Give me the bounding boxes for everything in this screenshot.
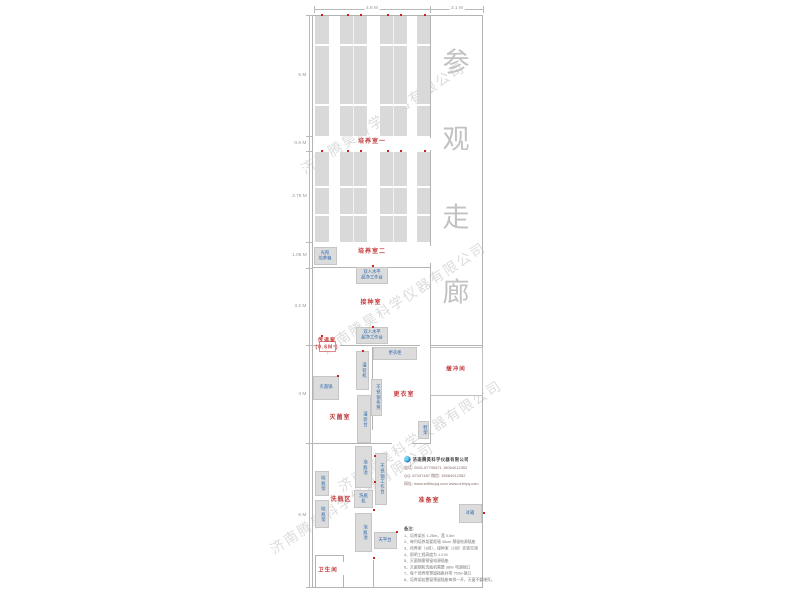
- company-logo-icon: [404, 456, 410, 462]
- wall-segment: [373, 560, 374, 587]
- notes-block: 备注: 1、培养架长 1.25m，宽 0.5m2、每列培养架要距墙 30cm 预…: [404, 525, 488, 584]
- rack-shelf-gap: [417, 214, 431, 216]
- balance-table: 天平台: [374, 532, 397, 549]
- shoe-rack-label: 鞋架: [421, 425, 426, 435]
- power-dot: [360, 150, 362, 152]
- power-dot: [372, 265, 374, 267]
- power-dot: [374, 455, 376, 457]
- pass-window-label: 传递窗 (0.6M²): [315, 338, 338, 351]
- dimension-tick: [306, 443, 313, 444]
- company-contact-line: 网址: www.sdthkxyq.com www.cnthyq.com: [404, 480, 489, 486]
- wall-segment: [315, 555, 343, 556]
- filling-machine: 灌装机: [356, 351, 369, 390]
- floor-plan-canvas: 济南腾昊科学仪器有限公司济南腾昊科学仪器有限公司济南腾昊科学仪器有限公司济南腾昊…: [0, 0, 800, 600]
- dimension-tick: [314, 6, 315, 13]
- dimension-tick: [306, 136, 313, 137]
- bottle-drying-rack-2: 晾瓶架: [315, 500, 329, 528]
- rack-split-line: [353, 16, 354, 136]
- clean-bench-1: 双人水平 超净工作台: [356, 267, 388, 284]
- autoclave-label: 灭菌锅: [320, 385, 333, 390]
- autoclave: 灭菌锅: [313, 376, 339, 400]
- power-dot: [347, 14, 349, 16]
- dimension-label: 3.2 M: [293, 304, 308, 309]
- filling-table: 灌装台: [357, 395, 371, 443]
- power-dot: [373, 557, 375, 559]
- power-dot: [347, 150, 349, 152]
- buffer-room-label: 缓冲间: [446, 366, 466, 373]
- power-dot: [387, 150, 389, 152]
- clean-bench-2-label: 双人水平 超净工作台: [361, 330, 383, 341]
- light-incubator: 光照 培养箱: [314, 247, 337, 265]
- power-dot: [396, 531, 398, 533]
- dimension-tick: [306, 151, 313, 152]
- preparation-room-label: 准备室: [418, 498, 439, 506]
- stainless-bench-label: 不锈钢条凳: [374, 385, 379, 410]
- dimension-tick: [306, 587, 313, 588]
- wall-segment: [430, 15, 431, 138]
- culture-rack-column: [315, 152, 329, 242]
- wall-segment: [343, 575, 344, 587]
- power-dot: [360, 14, 362, 16]
- dimension-label: 6 M: [297, 513, 308, 518]
- wall-segment: [343, 555, 344, 562]
- sterilization-room-label: 灭菌室: [329, 415, 350, 423]
- clean-bench-1-label: 双人水平 超净工作台: [361, 270, 383, 281]
- bottle-washing-area-label: 洗瓶区: [330, 497, 351, 505]
- company-name: 济南腾昊科学仪器有限公司: [413, 456, 469, 462]
- wall-segment: [412, 443, 431, 444]
- company-info-block: 济南腾昊科学仪器有限公司 电话: 0531-87790671 150640123…: [404, 456, 489, 486]
- culture-rack-column: [417, 152, 431, 242]
- power-dot: [387, 14, 389, 16]
- wall-segment: [312, 443, 392, 444]
- stainless-worktable-label: 不锈钢工作台: [378, 464, 383, 494]
- refrigerator-label: 冰箱: [466, 511, 475, 516]
- rack-shelf-gap: [315, 44, 329, 46]
- bottle-drying-rack-1: 晾瓶架: [315, 471, 329, 496]
- corridor-caption-char: 观: [443, 118, 470, 157]
- corridor-caption-char: 参: [443, 41, 470, 80]
- wall-segment: [430, 345, 482, 346]
- power-dot: [321, 150, 323, 152]
- note-item: 8、培养架若靠窗预留插座每排一开，天窗不要堵死。: [404, 578, 488, 584]
- notes-items: 1、培养架长 1.25m，宽 0.5m2、每列培养架要距墙 30cm 预留电源插…: [404, 533, 488, 584]
- dimension-line-left: [309, 15, 310, 588]
- rack-shelf-gap: [417, 44, 431, 46]
- rack-shelf-gap: [315, 104, 329, 106]
- rack-split-line: [353, 152, 354, 242]
- bottle-drying-rack-2-label: 晾瓶架: [319, 506, 324, 521]
- dimension-tick: [483, 6, 484, 13]
- dimension-label: 5 M: [297, 73, 308, 78]
- balance-table-label: 天平台: [379, 538, 392, 543]
- dimension-tick: [306, 242, 313, 243]
- dimension-tick: [430, 6, 431, 13]
- bottle-washer-label: 洗瓶机: [357, 494, 369, 505]
- rack-split-line: [393, 16, 394, 136]
- wall-segment: [340, 345, 420, 346]
- inoculation-room-label: 接种室: [360, 300, 381, 308]
- filling-machine-label: 灌装机: [360, 363, 365, 378]
- refrigerator: 冰箱: [459, 504, 482, 523]
- light-incubator-label: 光照 培养箱: [319, 251, 332, 262]
- power-dot: [373, 509, 375, 511]
- clean-bench-2: 双人水平 超净工作台: [356, 327, 388, 344]
- soak-pool-2-label: 泡瓶池: [361, 525, 366, 540]
- shoe-rack: 鞋架: [418, 421, 429, 439]
- power-dot: [424, 14, 426, 16]
- wall-segment: [312, 15, 483, 16]
- power-dot: [321, 14, 323, 16]
- rack-shelf-gap: [315, 186, 329, 188]
- dimension-label: 2.1 M: [449, 6, 464, 11]
- culture-room-2-label: 培养室二: [358, 249, 386, 257]
- soak-pool-1-label: 泡瓶池: [361, 459, 366, 474]
- wall-segment: [315, 555, 316, 587]
- wall-segment: [430, 150, 431, 246]
- power-dot: [374, 481, 376, 483]
- rack-shelf-gap: [315, 214, 329, 216]
- rack-shelf-gap: [417, 186, 431, 188]
- wall-segment: [430, 263, 431, 347]
- dimension-label: 1.05 M: [290, 253, 308, 258]
- wall-segment: [312, 15, 313, 588]
- corridor-caption-char: 走: [443, 196, 470, 235]
- stainless-worktable: 不锈钢工作台: [375, 453, 387, 505]
- dimension-label: 3.75 M: [290, 194, 308, 199]
- rack-split-line: [393, 152, 394, 242]
- corridor-caption-char: 廊: [443, 271, 470, 310]
- soak-pool-2: 泡瓶池: [355, 513, 372, 552]
- dimension-label: 4 M: [297, 392, 308, 397]
- culture-rack-column: [315, 16, 329, 136]
- bathroom-label: 卫生间: [318, 567, 338, 574]
- power-dot: [337, 375, 339, 377]
- company-contact-line: 电话: 0531-87790671 15064012352: [404, 465, 489, 471]
- culture-rack-column: [417, 16, 431, 136]
- changing-cabinet: 更衣柜: [373, 347, 417, 360]
- bottle-drying-rack-1-label: 晾瓶架: [319, 476, 324, 491]
- wall-segment: [312, 587, 483, 588]
- power-dot: [372, 326, 374, 328]
- stainless-bench: 不锈钢条凳: [371, 379, 382, 416]
- bottle-washer: 洗瓶机: [354, 490, 373, 508]
- culture-room-1-label: 培养室一: [358, 139, 386, 147]
- dimension-label: 0.6 M: [293, 141, 308, 146]
- company-contact-lines: 电话: 0531-87790671 15064012352QQ: 8743748…: [404, 465, 489, 487]
- power-dot: [400, 150, 402, 152]
- dimension-tick: [306, 345, 313, 346]
- dimension-label: 4.8 M: [364, 6, 379, 11]
- wall-segment: [430, 395, 431, 443]
- wall-segment: [482, 15, 483, 588]
- dimension-tick: [306, 15, 313, 16]
- power-dot: [400, 14, 402, 16]
- changing-room-label: 更衣室: [393, 392, 414, 400]
- changing-cabinet-label: 更衣柜: [389, 351, 402, 356]
- company-contact-line: QQ: 87437487 微信: 15064012352: [404, 473, 489, 479]
- soak-pool-1: 泡瓶池: [355, 446, 372, 488]
- filling-table-label: 灌装台: [361, 411, 366, 426]
- power-dot: [483, 512, 485, 514]
- power-dot: [362, 350, 364, 352]
- notes-title: 备注:: [404, 525, 488, 531]
- rack-shelf-gap: [417, 104, 431, 106]
- company-header: 济南腾昊科学仪器有限公司: [404, 456, 489, 462]
- dimension-tick: [306, 268, 313, 269]
- power-dot: [424, 150, 426, 152]
